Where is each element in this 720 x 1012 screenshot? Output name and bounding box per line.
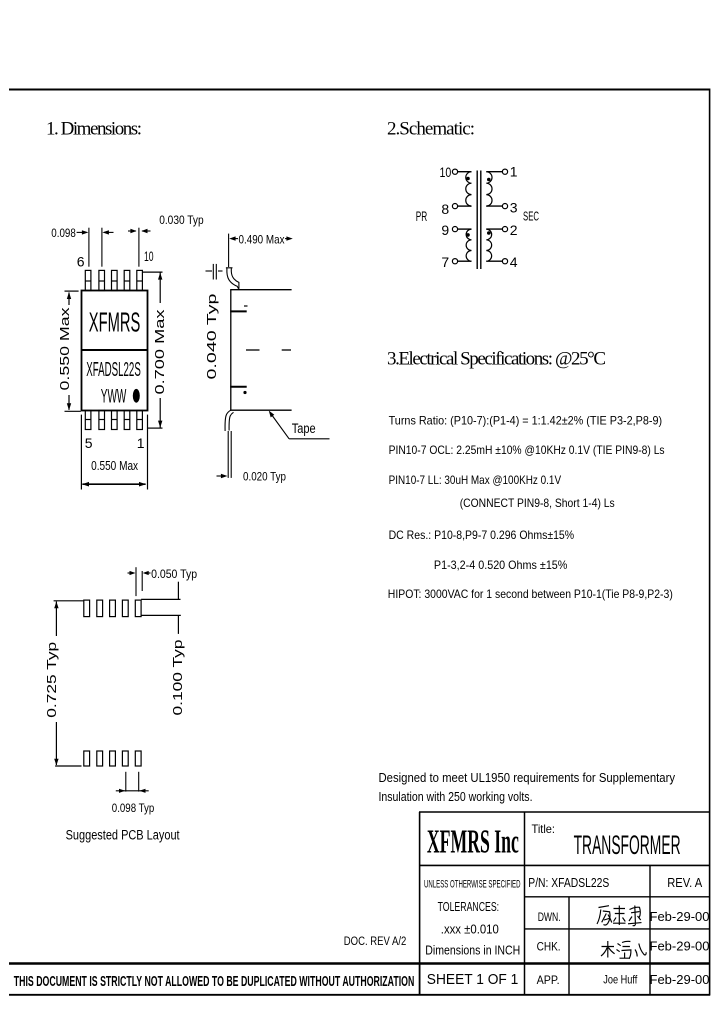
svg-text:DWN.: DWN. — [538, 910, 561, 924]
svg-text:TOLERANCES:: TOLERANCES: — [438, 900, 500, 914]
svg-text:Tape: Tape — [292, 421, 316, 436]
svg-text:10: 10 — [144, 248, 154, 264]
svg-text:0.490 Max: 0.490 Max — [239, 232, 285, 246]
svg-text:DC Res.: P10-8,P9-7 0.296 Ohms: DC Res.: P10-8,P9-7 0.296 Ohms±15% — [389, 528, 575, 542]
svg-text:PR: PR — [416, 209, 428, 224]
svg-text:9: 9 — [441, 222, 449, 238]
svg-text:1. Dimensions:: 1. Dimensions: — [46, 119, 142, 140]
svg-text:0.098 Typ: 0.098 Typ — [112, 801, 155, 815]
svg-text:Dimensions in INCH: Dimensions in INCH — [425, 943, 520, 958]
svg-text:0.040 Typ: 0.040 Typ — [205, 293, 219, 379]
svg-text:5: 5 — [85, 435, 93, 451]
svg-text:(CONNECT PIN9-8, Short 1-4) Ls: (CONNECT PIN9-8, Short 1-4) Ls — [460, 496, 615, 510]
svg-text:Feb-29-00: Feb-29-00 — [650, 909, 710, 924]
svg-text:0.725 Typ: 0.725 Typ — [45, 642, 59, 718]
svg-text:TRANSFORMER: TRANSFORMER — [574, 830, 681, 860]
svg-text:Suggested PCB Layout: Suggested PCB Layout — [66, 828, 180, 843]
svg-text:APP.: APP. — [537, 973, 560, 987]
svg-text:DOC. REV A/2: DOC. REV A/2 — [344, 936, 407, 948]
svg-text:Feb-29-00: Feb-29-00 — [650, 938, 710, 953]
svg-text:3: 3 — [510, 200, 518, 216]
svg-text:1: 1 — [510, 164, 518, 180]
svg-text:0.550 Max: 0.550 Max — [58, 306, 72, 390]
svg-text:0.030 Typ: 0.030 Typ — [159, 213, 204, 227]
svg-text:P1-3,2-4 0.520 Ohms ±15%: P1-3,2-4 0.520 Ohms ±15% — [434, 558, 568, 572]
svg-text:SHEET 1 OF 1: SHEET 1 OF 1 — [427, 972, 519, 988]
svg-text:0.020 Typ: 0.020 Typ — [243, 470, 286, 484]
svg-text:Joe Huff: Joe Huff — [603, 973, 638, 987]
svg-text:.xxx ±0.010: .xxx ±0.010 — [441, 922, 499, 936]
svg-text:0.700 Max: 0.700 Max — [153, 308, 167, 394]
svg-text:Feb-29-00: Feb-29-00 — [650, 972, 710, 987]
svg-text:4: 4 — [510, 254, 518, 270]
svg-text:3.Electrical Specifications: @: 3.Electrical Specifications: @25°C — [387, 349, 606, 370]
svg-text:SEC: SEC — [523, 209, 539, 224]
svg-text:8: 8 — [441, 201, 449, 217]
svg-text:YWW: YWW — [101, 387, 127, 408]
svg-text:0.550 Max: 0.550 Max — [91, 459, 139, 473]
svg-text:THIS DOCUMENT IS STRICTLY NOT: THIS DOCUMENT IS STRICTLY NOT ALLOWED TO… — [14, 974, 415, 990]
svg-text:0.050 Typ: 0.050 Typ — [151, 567, 197, 581]
svg-text:Insulation with 250 working vo: Insulation with 250 working volts. — [379, 789, 533, 804]
svg-text:PIN10-7 OCL: 2.25mH ±10% @10KH: PIN10-7 OCL: 2.25mH ±10% @10KHz 0.1V (TI… — [389, 443, 665, 457]
svg-text:10: 10 — [440, 164, 452, 180]
svg-text:XFMRS: XFMRS — [89, 307, 141, 338]
svg-text:Designed to meet UL1950 requir: Designed to meet UL1950 requirements for… — [379, 770, 676, 785]
svg-text:6: 6 — [77, 254, 85, 270]
svg-text:XFMRS Inc: XFMRS Inc — [427, 824, 519, 861]
svg-text:HIPOT: 3000VAC for 1 second be: HIPOT: 3000VAC for 1 second between P10-… — [388, 587, 673, 601]
svg-text:REV. A: REV. A — [667, 876, 703, 890]
svg-text:1: 1 — [137, 435, 145, 451]
svg-text:UNLESS OTHERWISE SPECIFIED: UNLESS OTHERWISE SPECIFIED — [424, 878, 521, 890]
svg-text:XFADSL22S: XFADSL22S — [86, 359, 141, 381]
svg-text:0.100 Typ: 0.100 Typ — [171, 639, 185, 715]
svg-text:2: 2 — [510, 222, 518, 238]
svg-text:P/N: XFADSL22S: P/N: XFADSL22S — [528, 876, 609, 890]
svg-text:Turns Ratio: (P10-7):(P1-4) =: Turns Ratio: (P10-7):(P1-4) = 1:1.42±2% … — [389, 414, 662, 428]
svg-text:2.Schematic:: 2.Schematic: — [387, 119, 475, 140]
svg-text:CHK.: CHK. — [537, 939, 561, 953]
svg-text:7: 7 — [441, 254, 449, 270]
svg-text:PIN10-7 LL: 30uH Max @100KHz 0: PIN10-7 LL: 30uH Max @100KHz 0.1V — [389, 473, 561, 487]
svg-text:Title:: Title: — [532, 822, 556, 836]
svg-text:0.098: 0.098 — [51, 226, 76, 240]
